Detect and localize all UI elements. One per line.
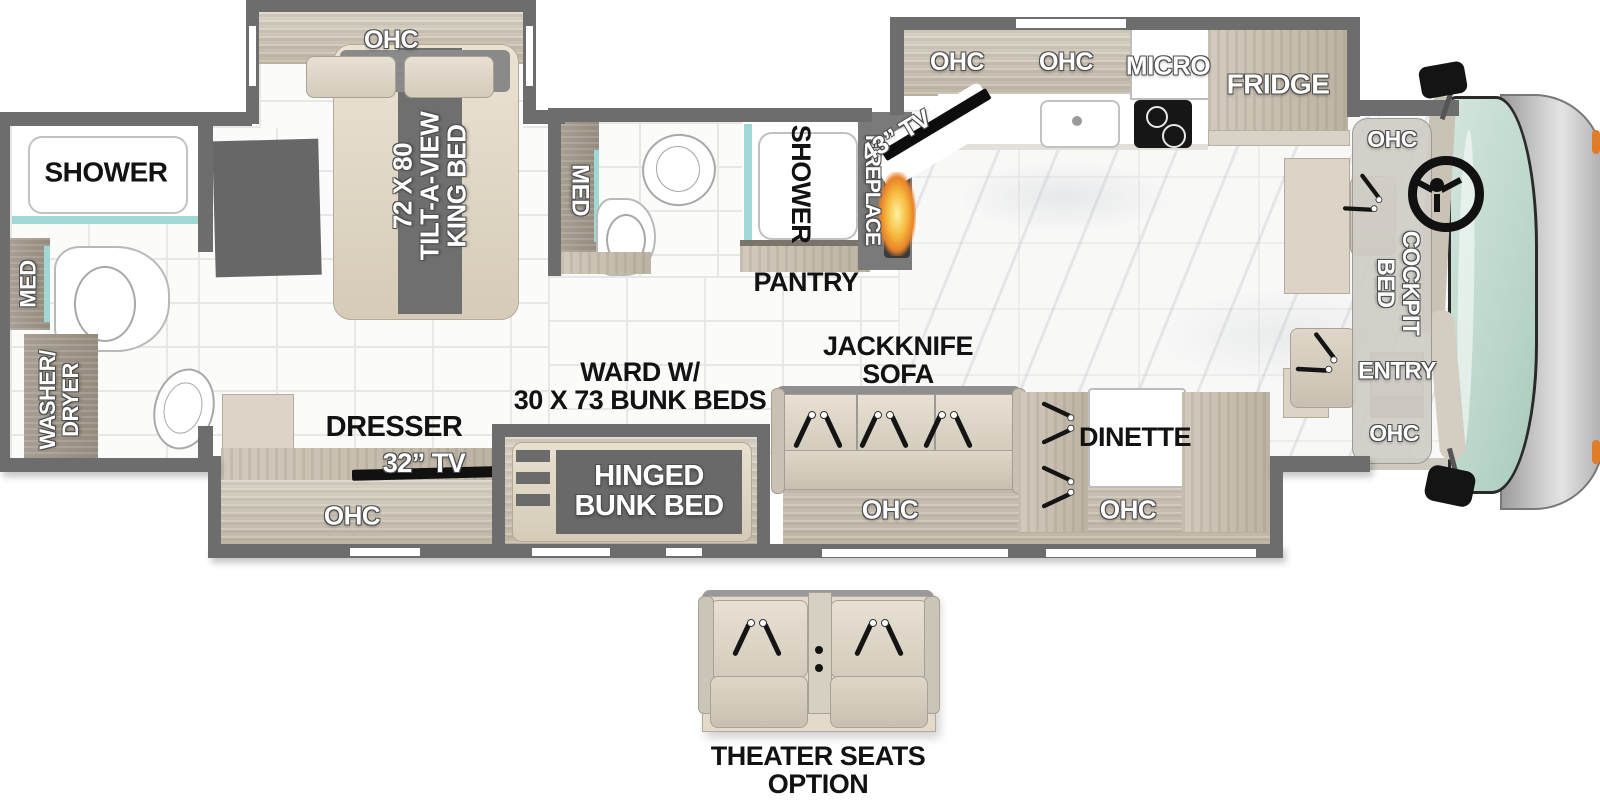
floorplan-canvas: SHOWER MED WASHER/ DRYER OHC 72 X 80 TIL… xyxy=(0,0,1600,802)
theater-seat-left xyxy=(710,676,808,728)
steering-spoke-bottom xyxy=(1434,194,1440,212)
steering-wheel-icon xyxy=(1408,156,1484,232)
label-rear-shower: SHOWER xyxy=(45,157,168,186)
bunk-ladder-rung-2 xyxy=(516,472,550,484)
label-kitchen-ohc-left: OHC xyxy=(930,49,984,75)
wall-rightslide-right xyxy=(1270,456,1283,558)
rear-shower-glass xyxy=(12,216,200,224)
label-cab-ohc-top: OHC xyxy=(1367,128,1417,152)
label-sofa-ohc: OHC xyxy=(862,496,918,523)
seatbelt-dinette-2 xyxy=(1033,467,1077,507)
king-pillow-right xyxy=(404,56,494,98)
wall-front-bottom xyxy=(1270,456,1370,472)
label-fridge: FRIDGE xyxy=(1227,69,1330,98)
cooktop-burner-2 xyxy=(1162,124,1186,148)
window-kitchen xyxy=(1016,19,1126,28)
label-hinged-bunk: HINGED BUNK BED xyxy=(574,461,723,521)
wall-kitchen-left xyxy=(890,17,904,115)
seatbelt-dinette-1 xyxy=(1033,403,1077,443)
label-king-ohc: OHC xyxy=(364,27,418,53)
label-mid-med: MED xyxy=(567,164,592,216)
bunk-ladder-rung-3 xyxy=(516,494,550,506)
seatbelt-sofa-2 xyxy=(861,408,907,458)
mid-bath-counter xyxy=(561,252,651,274)
wall-bunk-left xyxy=(492,424,505,548)
dinette-bench-right xyxy=(1182,392,1270,532)
theater-cupholder-1 xyxy=(815,646,823,654)
wall-rearbath-right-lower xyxy=(198,426,213,460)
marker-light-bottom xyxy=(1592,440,1600,464)
label-dinette: DINETTE xyxy=(1079,423,1191,451)
mid-shower-glass xyxy=(744,124,752,244)
rear-lav-sink xyxy=(74,266,136,342)
label-dinette-ohc: OHC xyxy=(1100,496,1156,523)
label-king-bed: 72 X 80 TILT-A-VIEW KING BED xyxy=(389,112,470,261)
wall-rear-left xyxy=(0,112,10,472)
label-jackknife-sofa: JACKKNIFE SOFA xyxy=(823,332,973,388)
window-dresser xyxy=(350,548,420,556)
label-micro: MICRO xyxy=(1126,52,1210,79)
window-dinette xyxy=(1046,549,1256,557)
wall-bunk-right xyxy=(757,424,770,548)
label-dresser-ohc: OHC xyxy=(324,502,380,529)
label-kitchen-ohc-right: OHC xyxy=(1039,49,1093,75)
wall-kingslide-top xyxy=(246,0,536,12)
window-kingslide-left xyxy=(249,26,256,86)
label-pantry: PANTRY xyxy=(754,268,859,296)
wall-rearbath-right-upper xyxy=(198,120,213,252)
wall-midbath-top xyxy=(548,108,872,122)
seatbelt-theater-1 xyxy=(734,616,780,666)
rear-med-accent xyxy=(44,246,50,322)
window-sofa xyxy=(822,549,1008,557)
front-wardrobe-cabinet xyxy=(1284,158,1350,294)
wall-rear-top xyxy=(0,112,252,126)
label-cockpit-bed: COCKPIT BED xyxy=(1372,231,1422,336)
wall-rear-bottom xyxy=(0,458,218,472)
seatbelt-sofa-3 xyxy=(925,408,971,458)
label-mid-shower: SHOWER xyxy=(787,125,815,244)
marker-light-top xyxy=(1592,130,1600,154)
label-ward-bunk: WARD W/ 30 X 73 BUNK BEDS xyxy=(514,358,767,414)
sofa-armrest-left xyxy=(771,388,785,494)
bedroom-tv-panel xyxy=(212,139,322,278)
window-bunk-2 xyxy=(666,548,702,556)
label-tv-32: 32” TV xyxy=(383,449,466,477)
label-cab-ohc-bottom: OHC xyxy=(1369,422,1419,446)
seatbelt-sofa-1 xyxy=(795,408,841,458)
theater-seat-right xyxy=(830,676,928,728)
label-dresser: DRESSER xyxy=(326,412,463,442)
bunk-ladder-rung-1 xyxy=(516,450,550,462)
label-theater-option: THEATER SEATS OPTION xyxy=(711,742,926,798)
steering-hub xyxy=(1430,178,1444,192)
window-kingslide-right xyxy=(526,26,533,86)
wall-leftslide-left xyxy=(208,456,221,558)
theater-cupholder-2 xyxy=(815,664,823,672)
sofa-divider-1 xyxy=(856,394,858,450)
label-rear-med: MED xyxy=(18,260,41,307)
wall-bunk-top xyxy=(492,424,770,437)
fridge-base xyxy=(1208,130,1350,146)
label-entry: ENTRY xyxy=(1358,360,1436,385)
label-washer-dryer: WASHER/ DRYER xyxy=(37,350,83,449)
king-pillow-left xyxy=(306,56,396,98)
cooktop-burner-1 xyxy=(1146,106,1168,128)
seatbelt-theater-2 xyxy=(856,616,902,666)
side-mirror-top-icon xyxy=(1418,60,1469,100)
window-bunk-1 xyxy=(532,548,610,556)
kitchen-faucet xyxy=(1072,116,1082,126)
wall-midbath-left xyxy=(548,108,561,276)
